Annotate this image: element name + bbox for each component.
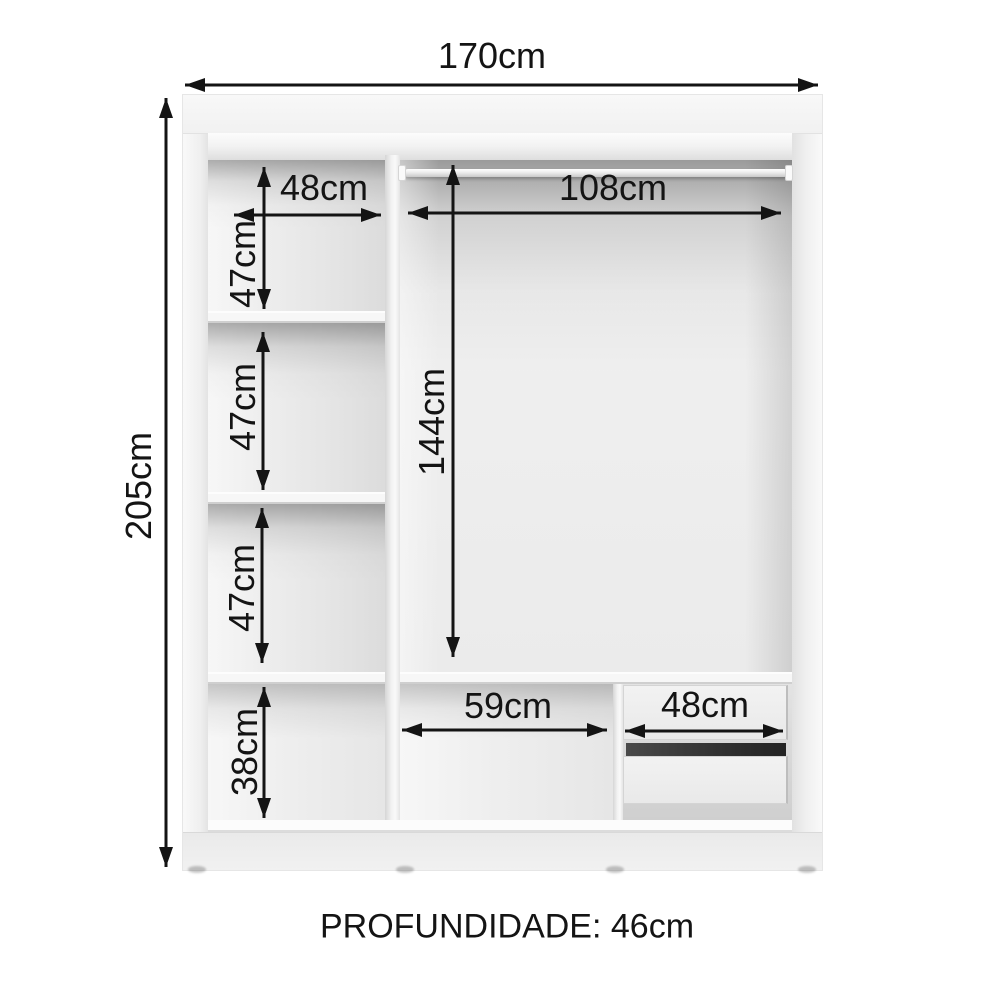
cabinet-base-plinth [183, 832, 822, 870]
left-compartment-2-height-label: 47cm [225, 363, 261, 451]
cabinet-foot-2 [396, 866, 414, 873]
center-divider-panel [385, 155, 400, 820]
left-shelf-2 [208, 492, 385, 504]
drawer-gap-recess [626, 743, 786, 756]
interior-ceiling-panel [208, 133, 792, 160]
main-hanging-compartment [400, 160, 792, 672]
bottom-drawer [623, 756, 788, 804]
right-section-width-label: 108cm [559, 170, 667, 206]
total-height-label: 205cm [121, 432, 157, 540]
bottom-open-compartment-width-label: 59cm [464, 688, 552, 724]
left-compartment-1-height-label: 47cm [225, 220, 261, 308]
cabinet-left-side-panel [183, 95, 208, 870]
total-width-label: 170cm [438, 38, 546, 74]
left-compartment-3-height-label: 47cm [224, 544, 260, 632]
cabinet-foot-1 [188, 866, 206, 873]
cabinet-right-side-panel [792, 95, 822, 870]
rod-bracket-left [398, 165, 406, 181]
cabinet-foot-4 [798, 866, 816, 873]
cabinet-top-panel [183, 95, 822, 134]
bottom-divider-panel [613, 684, 623, 820]
wardrobe-dimension-diagram: 170cm 205cm 48cm 47cm 47cm 47cm 38cm 108… [0, 0, 1000, 1000]
rod-bracket-right [785, 165, 793, 181]
bottom-shelf [208, 672, 792, 684]
right-section-height-label: 144cm [414, 368, 450, 476]
depth-note: PROFUNDIDADE: 46cm [320, 908, 694, 947]
left-shelf-1 [208, 311, 385, 323]
cabinet-foot-3 [606, 866, 624, 873]
left-bottom-compartment-height-label: 38cm [227, 708, 263, 796]
drawer-unit-width-label: 48cm [661, 687, 749, 723]
left-column-width-label: 48cm [280, 170, 368, 206]
interior-floor-panel [208, 820, 792, 832]
